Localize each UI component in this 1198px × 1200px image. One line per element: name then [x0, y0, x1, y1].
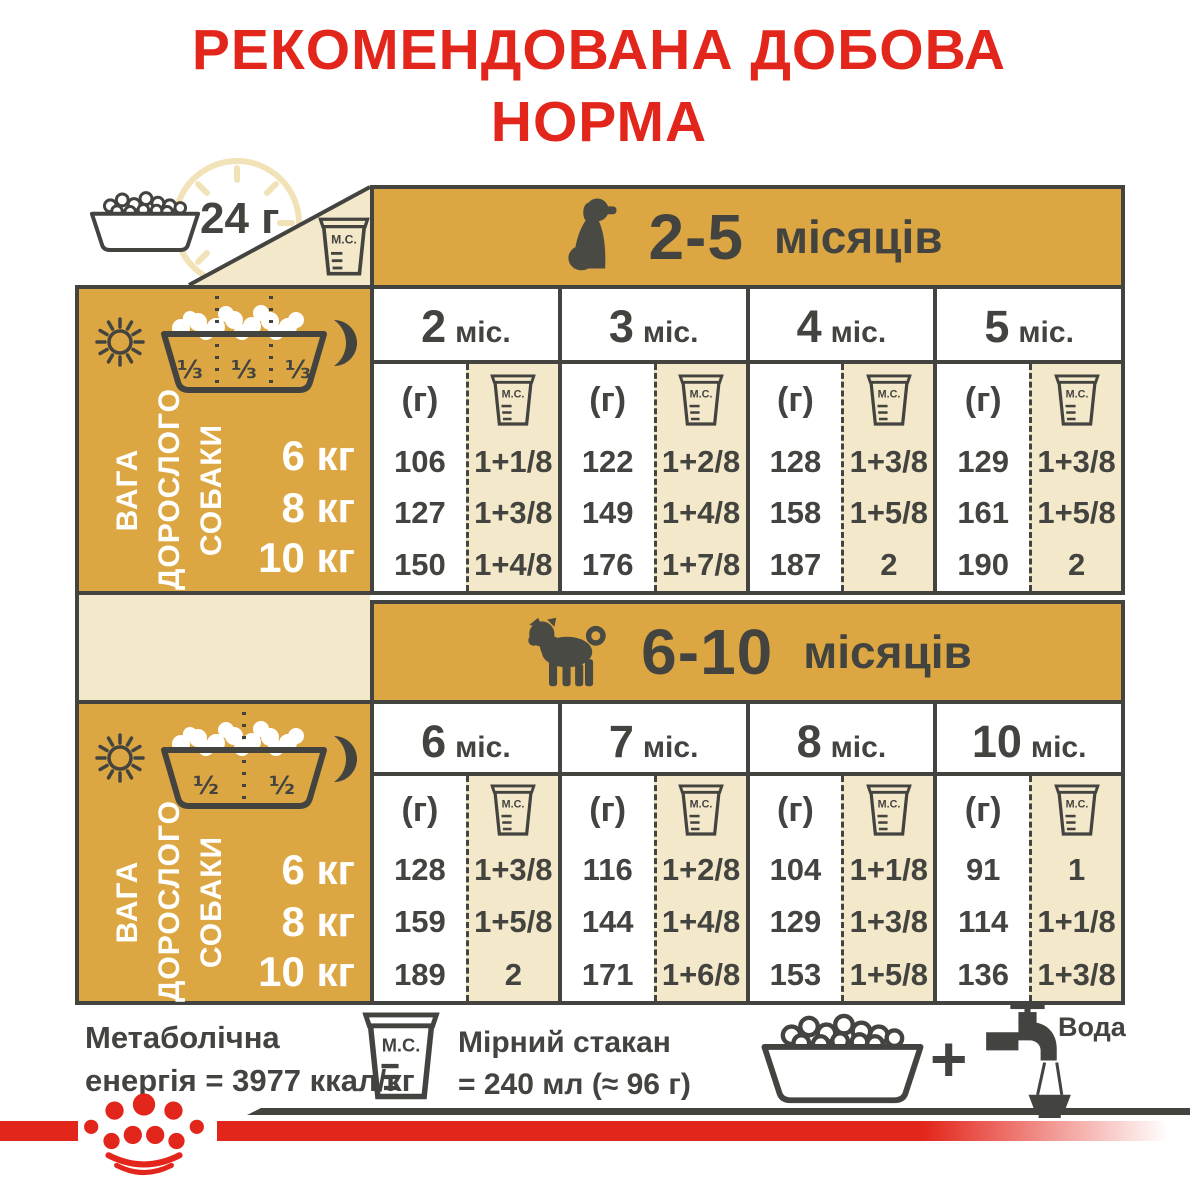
- weight-row-label: 10 кг: [190, 532, 355, 584]
- svg-text:М.С.: М.С.: [1065, 388, 1088, 400]
- grams-value: 159: [374, 904, 466, 940]
- grams-value: 176: [562, 547, 654, 583]
- cups-value: 1+1/8: [1032, 904, 1121, 940]
- cups-value: 1: [1032, 852, 1121, 888]
- grams-value: 128: [374, 852, 466, 888]
- cups-value: 1+5/8: [469, 904, 558, 940]
- cups-subcolumn: М.С. 1+2/8 1+4/8 1+7/8: [654, 364, 746, 591]
- measuring-cup-icon: М.С.: [490, 783, 536, 838]
- grams-value: 114: [937, 904, 1029, 940]
- grams-value: 104: [750, 852, 842, 888]
- table1-grid: 2 міс. (г) 106 127 150 М.С. 1+1/8 1+3/8 …: [370, 285, 1125, 595]
- svg-text:М.С.: М.С.: [877, 388, 900, 400]
- measuring-cup-icon: М.С.: [318, 216, 370, 278]
- cups-subcolumn: М.С. 1+3/8 1+5/8 2: [466, 776, 558, 1001]
- grams-value: 189: [374, 957, 466, 993]
- cups-subcolumn: М.С. 1+1/8 1+3/8 1+4/8: [466, 364, 558, 591]
- grams-value: 153: [750, 957, 842, 993]
- month-header: 10 міс.: [937, 704, 1121, 776]
- grams-value: 190: [937, 547, 1029, 583]
- grams-subcolumn: (г) 116 144 171: [562, 776, 654, 1001]
- cups-value: 1+3/8: [469, 495, 558, 531]
- grams-value: 158: [750, 495, 842, 531]
- svg-text:⅓: ⅓: [285, 355, 311, 384]
- grams-unit-label: (г): [374, 364, 466, 436]
- cups-value: 1+4/8: [657, 495, 746, 531]
- grams-subcolumn: (г) 122 149 176: [562, 364, 654, 591]
- sun-icon: [97, 319, 143, 365]
- plus-sign: +: [930, 1022, 967, 1096]
- measuring-cup-note: Мірний стакан = 240 мл (≈ 96 г): [458, 1022, 691, 1106]
- grams-value: 161: [937, 495, 1029, 531]
- moon-icon: [334, 320, 357, 366]
- measuring-cup-icon: М.С.: [866, 783, 912, 838]
- cups-subcolumn: М.С. 1+3/8 1+5/8 2: [1029, 364, 1121, 591]
- svg-text:М.С.: М.С.: [690, 388, 713, 400]
- cups-subcolumn: М.С. 1+1/8 1+3/8 1+5/8: [841, 776, 933, 1001]
- red-band-right: [217, 1121, 1198, 1141]
- month-header: 6 міс.: [374, 704, 558, 776]
- grams-value: 129: [750, 904, 842, 940]
- svg-text:М.С.: М.С.: [1065, 798, 1088, 810]
- month-header: 3 міс.: [562, 289, 746, 364]
- grams-value: 171: [562, 957, 654, 993]
- month-header: 5 міс.: [937, 289, 1121, 364]
- measuring-cup-icon: М.С.: [362, 1010, 440, 1103]
- cups-value: 2: [844, 547, 933, 583]
- grams-subcolumn: (г) 106 127 150: [374, 364, 466, 591]
- age-column: 7 міс. (г) 116 144 171 М.С. 1+2/8 1+4/8 …: [558, 704, 746, 1001]
- page-title-line1: РЕКОМЕНДОВАНА ДОБОВА: [0, 14, 1198, 86]
- moon-icon: [334, 736, 357, 782]
- table2-age-word: місяців: [803, 625, 972, 679]
- svg-text:⅓: ⅓: [231, 355, 257, 384]
- cups-value: 1+3/8: [469, 852, 558, 888]
- measuring-cup-icon: М.С.: [490, 373, 536, 428]
- daily-duration-label: 24 г: [200, 194, 280, 244]
- cups-value: 1+3/8: [844, 904, 933, 940]
- svg-text:М.С.: М.С.: [877, 798, 900, 810]
- cups-value: 1+3/8: [1032, 957, 1121, 993]
- cups-value: 1+5/8: [844, 957, 933, 993]
- cups-subcolumn: М.С. 1+2/8 1+4/8 1+6/8: [654, 776, 746, 1001]
- table2-header: 6-10 місяців: [370, 600, 1125, 700]
- grams-subcolumn: (г) 128 159 189: [374, 776, 466, 1001]
- measuring-cup-icon: М.С.: [1054, 783, 1100, 838]
- food-bowl-icon: [84, 190, 206, 256]
- cups-value: 1+4/8: [469, 547, 558, 583]
- grams-subcolumn: (г) 129 161 190: [937, 364, 1029, 591]
- cups-value: 1+5/8: [844, 495, 933, 531]
- grams-value: 122: [562, 444, 654, 480]
- grams-value: 144: [562, 904, 654, 940]
- grams-value: 136: [937, 957, 1029, 993]
- age-column: 2 міс. (г) 106 127 150 М.С. 1+1/8 1+3/8 …: [374, 289, 558, 591]
- page-title: РЕКОМЕНДОВАНА ДОБОВА НОРМА: [0, 14, 1198, 158]
- red-band-left: [0, 1121, 78, 1141]
- month-header: 8 міс.: [750, 704, 934, 776]
- separator-band: [75, 595, 370, 700]
- table1-header: 2-5 місяців: [370, 185, 1125, 285]
- cups-value: 1+7/8: [657, 547, 746, 583]
- grams-subcolumn: (г) 104 129 153: [750, 776, 842, 1001]
- footer-divider-line: [247, 1108, 1190, 1115]
- feeding-guide-page: РЕКОМЕНДОВАНА ДОБОВА НОРМА 24 г М.С.: [0, 0, 1198, 1200]
- table1-age-word: місяців: [774, 210, 943, 264]
- cups-value: 1+2/8: [657, 444, 746, 480]
- grams-value: 91: [937, 852, 1029, 888]
- measuring-cup-icon: М.С.: [678, 373, 724, 428]
- royal-canin-crown-logo: [78, 1092, 210, 1184]
- grams-value: 129: [937, 444, 1029, 480]
- grams-value: 149: [562, 495, 654, 531]
- table1-age-range: 2-5: [648, 200, 744, 274]
- cups-value: 1+3/8: [1032, 444, 1121, 480]
- age-column: 10 міс. (г) 91 114 136 М.С. 1 1+1/8 1+3/…: [933, 704, 1121, 1001]
- puppy-icon: [552, 195, 618, 279]
- month-header: 2 міс.: [374, 289, 558, 364]
- cups-value: 1+1/8: [469, 444, 558, 480]
- grams-subcolumn: (г) 91 114 136: [937, 776, 1029, 1001]
- cups-value: 1+3/8: [844, 444, 933, 480]
- cups-value: 2: [1032, 547, 1121, 583]
- svg-text:М.С.: М.С.: [382, 1034, 421, 1055]
- cups-value: 2: [469, 957, 558, 993]
- svg-text:½: ½: [193, 771, 219, 800]
- weight-row-label: 8 кг: [190, 482, 355, 534]
- age-column: 3 міс. (г) 122 149 176 М.С. 1+2/8 1+4/8 …: [558, 289, 746, 591]
- svg-text:⅓: ⅓: [177, 355, 203, 384]
- grams-value: 187: [750, 547, 842, 583]
- age-column: 6 міс. (г) 128 159 189 М.С. 1+3/8 1+5/8 …: [374, 704, 558, 1001]
- age-column: 5 міс. (г) 129 161 190 М.С. 1+3/8 1+5/8 …: [933, 289, 1121, 591]
- measuring-cup-icon: М.С.: [866, 373, 912, 428]
- cups-value: 1+1/8: [844, 852, 933, 888]
- measuring-cup-icon: М.С.: [678, 783, 724, 838]
- measuring-cup-icon: М.С.: [1054, 373, 1100, 428]
- month-header: 7 міс.: [562, 704, 746, 776]
- grams-value: 116: [562, 852, 654, 888]
- cups-value: 1+2/8: [657, 852, 746, 888]
- table2-grid: 6 міс. (г) 128 159 189 М.С. 1+3/8 1+5/8 …: [370, 700, 1125, 1005]
- age-column: 8 міс. (г) 104 129 153 М.С. 1+1/8 1+3/8 …: [746, 704, 934, 1001]
- svg-text:М.С.: М.С.: [331, 233, 357, 247]
- cups-value: 1+5/8: [1032, 495, 1121, 531]
- sun-icon: [97, 735, 143, 781]
- month-header: 4 міс.: [750, 289, 934, 364]
- food-bowl-icon: [750, 1012, 935, 1109]
- svg-text:М.С.: М.С.: [502, 388, 525, 400]
- svg-text:М.С.: М.С.: [690, 798, 713, 810]
- age-column: 4 міс. (г) 128 158 187 М.С. 1+3/8 1+5/8 …: [746, 289, 934, 591]
- weight-row-label: 6 кг: [190, 430, 355, 482]
- table2-age-range: 6-10: [641, 615, 773, 689]
- grams-value: 150: [374, 547, 466, 583]
- grams-value: 106: [374, 444, 466, 480]
- pug-icon: [523, 616, 611, 688]
- cups-subcolumn: М.С. 1+3/8 1+5/8 2: [841, 364, 933, 591]
- svg-text:½: ½: [269, 771, 295, 800]
- cups-subcolumn: М.С. 1 1+1/8 1+3/8: [1029, 776, 1121, 1001]
- weight-row-label: 10 кг: [190, 946, 355, 998]
- svg-text:М.С.: М.С.: [502, 798, 525, 810]
- weight-row-label: 8 кг: [190, 896, 355, 948]
- cups-value: 1+4/8: [657, 904, 746, 940]
- grams-value: 127: [374, 495, 466, 531]
- water-label: Вода: [1058, 1012, 1126, 1043]
- cups-value: 1+6/8: [657, 957, 746, 993]
- grams-value: 128: [750, 444, 842, 480]
- grams-subcolumn: (г) 128 158 187: [750, 364, 842, 591]
- weight-row-label: 6 кг: [190, 844, 355, 896]
